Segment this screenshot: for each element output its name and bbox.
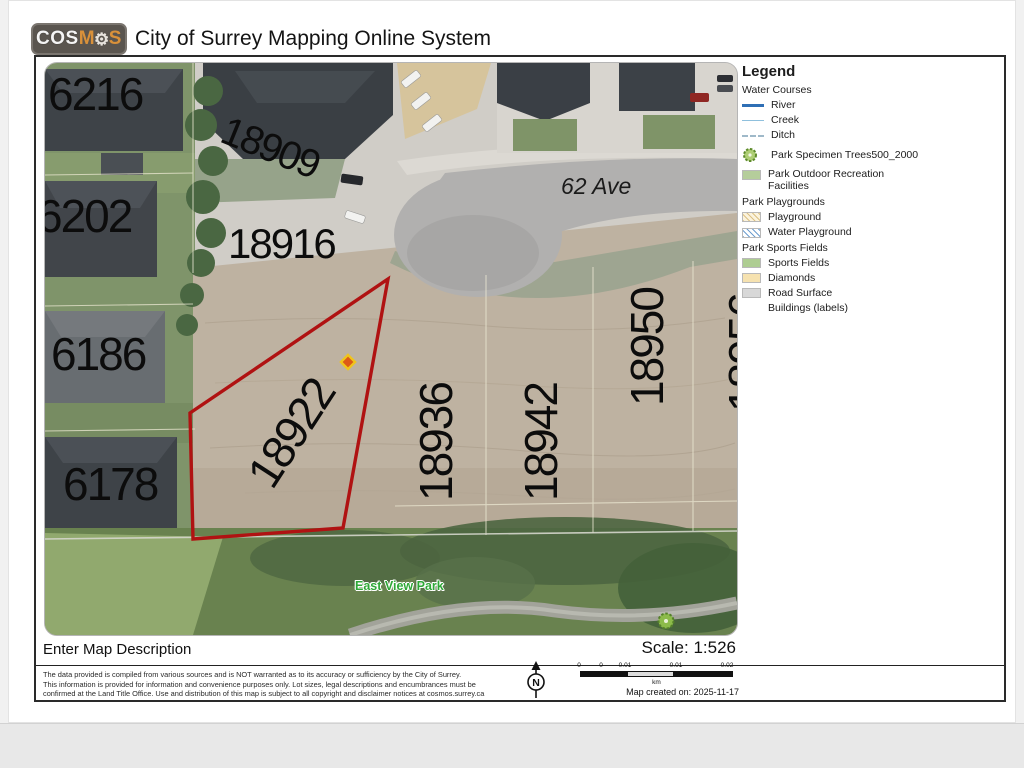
street-label-62-ave: 62 Ave — [561, 175, 631, 198]
parcel-label-6178: 6178 — [63, 461, 157, 507]
legend-group-park-playgrounds: Park Playgrounds — [742, 196, 1002, 209]
legend-row-diamonds: Diamonds — [742, 272, 1002, 285]
water-playground-swatch — [742, 228, 761, 238]
legend-row-specimen-trees: Park Specimen Trees500_2000 — [742, 147, 1002, 163]
gear-icon: ⚙ — [94, 31, 110, 48]
logo-text-cos: COS — [36, 28, 79, 50]
legend-row-buildings-labels: Buildings (labels) — [742, 302, 1002, 315]
parcel-label-18916: 18916 — [228, 223, 335, 265]
logo-text-s: S — [109, 28, 122, 50]
legend-row-playground: Playground — [742, 211, 1002, 224]
river-line-swatch — [742, 104, 764, 107]
legend-row-road-surface: Road Surface — [742, 287, 1002, 300]
map-print-frame: 6216 18909 6202 18916 6186 18922 18936 1… — [34, 55, 1006, 702]
diamonds-swatch — [742, 273, 761, 283]
disclaimer-text: The data provided is compiled from vario… — [43, 670, 513, 699]
parcel-label-6202: 6202 — [45, 193, 131, 239]
footer-divider — [36, 665, 1004, 666]
ditch-line-swatch — [742, 135, 764, 137]
legend-row-outdoor-recreation: Park Outdoor Recreation Facilities — [742, 168, 1002, 193]
map-canvas: 6216 18909 6202 18916 6186 18922 18936 1… — [45, 63, 737, 635]
scale-unit: km — [580, 679, 733, 686]
sports-fields-swatch — [742, 258, 761, 268]
page-title: City of Surrey Mapping Online System — [135, 27, 491, 51]
legend-title: Legend — [742, 63, 1002, 80]
legend-row-sports-fields: Sports Fields — [742, 257, 1002, 270]
scale-tick: 0 — [599, 662, 603, 669]
parcel-label-18950: 18950 — [624, 288, 670, 406]
legend-row-water-playground: Water Playground — [742, 226, 1002, 239]
park-label-east-view-park: East View Park — [355, 580, 444, 593]
parcel-label-18956-partial: 18956 — [722, 294, 737, 412]
parcel-label-6216: 6216 — [48, 71, 142, 117]
legend-group-water-courses: Water Courses — [742, 84, 1002, 97]
scale-tick: 0.02 — [721, 662, 734, 669]
print-page: COSM⚙S City of Surrey Mapping Online Sys… — [8, 0, 1016, 723]
legend-panel: Legend Water Courses River Creek Ditch — [742, 63, 1002, 317]
scale-readout: Scale: 1:526 — [486, 638, 736, 658]
legend-row-river: River — [742, 99, 1002, 112]
parcel-label-18942: 18942 — [518, 383, 564, 501]
cosmos-logo: COSM⚙S — [31, 23, 127, 55]
playground-swatch — [742, 212, 761, 222]
preview-gutter — [0, 723, 1024, 768]
map-created-date: Map created on: 2025-11-17 — [539, 687, 739, 697]
logo-text-m: M — [79, 28, 95, 50]
road-surface-swatch — [742, 288, 761, 298]
scale-tick: 0 — [577, 662, 581, 669]
legend-row-ditch: Ditch — [742, 129, 1002, 142]
creek-line-swatch — [742, 120, 764, 122]
scale-bar-segments — [580, 671, 733, 677]
parcel-label-18936: 18936 — [413, 383, 459, 501]
legend-group-park-sports-fields: Park Sports Fields — [742, 242, 1002, 255]
app-header: COSM⚙S City of Surrey Mapping Online Sys… — [31, 21, 491, 57]
print-preview-background: COSM⚙S City of Surrey Mapping Online Sys… — [0, 0, 1024, 768]
parcel-label-6186: 6186 — [51, 331, 145, 377]
scale-tick: 0.01 — [619, 662, 632, 669]
recreation-swatch — [742, 170, 761, 180]
legend-row-creek: Creek — [742, 114, 1002, 127]
tree-icon — [742, 147, 758, 163]
map-description-input[interactable]: Enter Map Description — [43, 641, 191, 658]
scale-tick: 0.01 — [670, 662, 683, 669]
